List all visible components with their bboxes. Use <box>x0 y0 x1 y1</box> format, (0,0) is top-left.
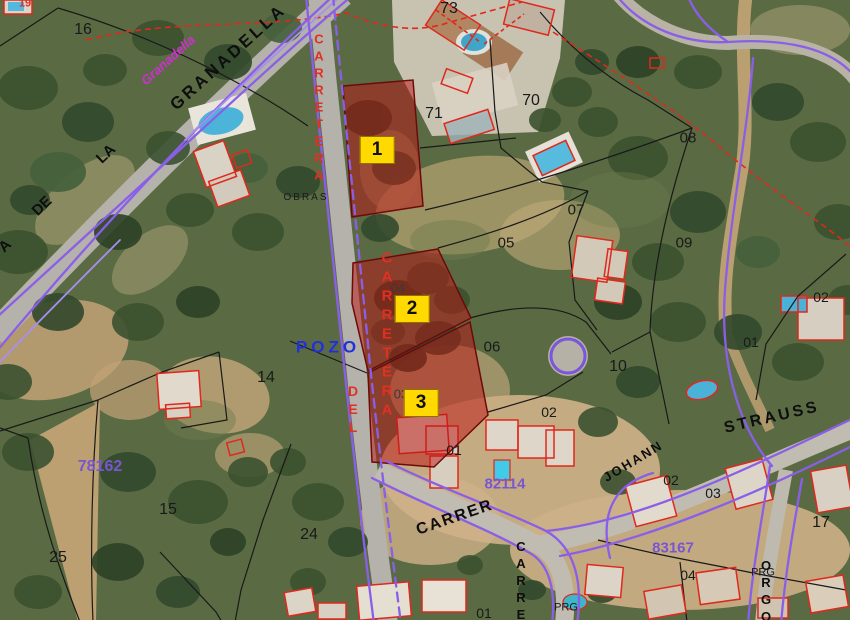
parcel-badge-1[interactable]: 1 <box>360 136 395 164</box>
parcel-badge-3[interactable]: 3 <box>404 389 439 417</box>
map-viewport[interactable]: GRANADELLADELAACARRERJOHANNSTRAUSSCARRER… <box>0 0 850 620</box>
parcel-badge-2[interactable]: 2 <box>395 295 430 323</box>
